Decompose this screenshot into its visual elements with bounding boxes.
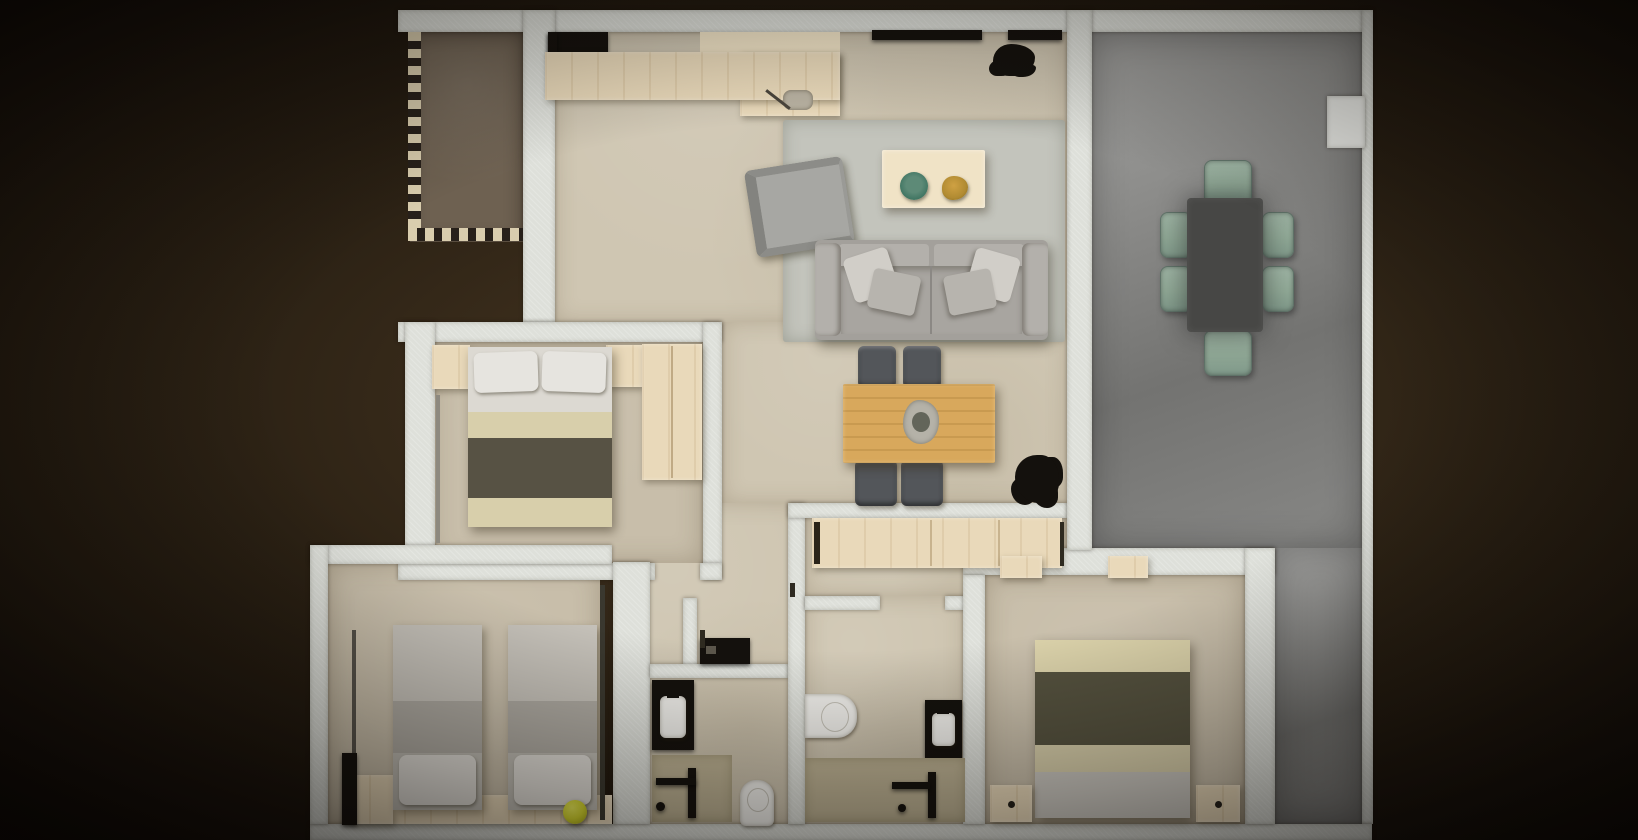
- twin-pillow: [514, 755, 591, 805]
- bed-twin-b: [508, 625, 597, 810]
- shower2-floor: [805, 758, 965, 822]
- sofa-seam: [930, 266, 932, 334]
- balcony-floor: [410, 32, 523, 242]
- balcony-railing-left: [408, 32, 421, 230]
- door-block: [1000, 556, 1042, 578]
- wall-bedroom3-right: [1245, 548, 1275, 824]
- door-block: [1108, 556, 1148, 578]
- nightstand: [1196, 785, 1240, 822]
- twin-band: [393, 701, 482, 753]
- twin-band: [508, 701, 597, 753]
- wardrobe-seam: [671, 346, 673, 478]
- vanity-bathroom1: [652, 680, 694, 750]
- shower2-arm: [892, 782, 930, 789]
- sofa: [815, 240, 1048, 340]
- dining-chair: [858, 346, 896, 388]
- shower2-drain: [898, 804, 906, 812]
- bed-double-1: [468, 347, 612, 527]
- toilet-bathroom1: [740, 780, 774, 826]
- bed3-blanket: [1035, 672, 1190, 745]
- nightstand-knob: [1008, 801, 1015, 808]
- plant-hall: [1015, 455, 1059, 503]
- shower1-drain: [656, 802, 665, 811]
- balcony-railing-bottom: [408, 228, 523, 241]
- yellow-ball: [563, 800, 587, 824]
- sink-bathroom2: [932, 713, 955, 746]
- sideboard-right-shadow: [1060, 522, 1064, 566]
- sofa-armrest-right: [1022, 243, 1048, 336]
- sideboard-seam: [930, 520, 932, 566]
- door-frame-tick: [700, 630, 705, 648]
- wall-bathroom2-top-b: [945, 596, 965, 610]
- bed1-cream-foot: [468, 498, 612, 527]
- wall-bedroom2-left: [310, 545, 328, 824]
- sink-bathroom1: [660, 696, 686, 738]
- bed1-pillow: [541, 351, 606, 393]
- shower1-bar: [688, 768, 696, 818]
- toilet-bathroom2: [805, 694, 857, 738]
- vanity-bathroom2: [925, 700, 962, 758]
- twin-pillow: [399, 755, 476, 805]
- table-centerpiece: [903, 400, 939, 444]
- dining-chair: [901, 460, 943, 506]
- window-slit-2: [1008, 30, 1062, 40]
- nightstand-knob: [1215, 801, 1222, 808]
- wall-bathrooms-divider: [788, 503, 805, 824]
- tap-bathroom2: [937, 705, 949, 714]
- wall-column: [1327, 96, 1365, 148]
- bed-double-3: [1035, 640, 1190, 818]
- nightstand: [432, 345, 470, 389]
- coffee-table: [882, 150, 985, 208]
- terrace-table: [1187, 198, 1263, 332]
- wall-bottom: [310, 824, 1372, 840]
- sideboard-end-shadow: [814, 522, 820, 564]
- tap-bathroom1: [667, 688, 679, 698]
- wall-bedroom1-right: [703, 322, 722, 580]
- sofa-armrest-left: [815, 243, 841, 336]
- terrace-chair: [1262, 212, 1294, 258]
- wall-washer-niche-stub: [683, 598, 697, 666]
- wall-bathroom1-top: [650, 664, 788, 678]
- bedroom1-rail: [436, 395, 440, 543]
- bed1-cream-band: [468, 412, 612, 440]
- washer-detail: [706, 646, 716, 654]
- washer: [700, 638, 750, 664]
- bed-twin-a: [393, 625, 482, 810]
- bed3-sheet-bottom: [1035, 772, 1190, 818]
- wall-bedroom1-top: [398, 322, 722, 342]
- wardrobe: [642, 344, 702, 480]
- shower1-arm: [656, 778, 696, 785]
- door-frame-tick: [790, 583, 795, 597]
- bed3-cream-top: [1035, 640, 1190, 672]
- dining-chair: [855, 460, 897, 506]
- wall-bedroom2-bathroom1: [613, 562, 650, 824]
- bed1-blanket: [468, 438, 612, 500]
- bed1-pillow: [473, 351, 538, 393]
- floor-plan-render: [0, 0, 1638, 840]
- toilet2-seat-line: [821, 702, 849, 732]
- dining-chair: [903, 346, 941, 388]
- bed3-cream-mid: [1035, 745, 1190, 772]
- terrace-chair: [1262, 266, 1294, 312]
- wall-bedroom2-top: [310, 545, 612, 564]
- wall-terrace-left: [1067, 10, 1092, 550]
- twin-duvet: [393, 625, 482, 701]
- green-plate: [900, 172, 928, 200]
- terrace-floor-right: [1275, 548, 1362, 824]
- wall-bedroom1-bottom-b: [700, 563, 722, 580]
- window-slit-1: [872, 30, 982, 40]
- nightstand: [990, 785, 1032, 822]
- twin-duvet: [508, 625, 597, 701]
- wall-bedroom1-left: [405, 322, 435, 563]
- toilet1-seat-line: [747, 788, 769, 812]
- kitchen-counter-upper: [700, 32, 840, 52]
- centerpiece-plant: [912, 412, 930, 432]
- bedroom2-dark-bar: [342, 753, 357, 825]
- wall-bathroom2-top-a: [805, 596, 880, 610]
- bedroom2-door-shadow: [600, 585, 605, 820]
- terrace-chair: [1204, 330, 1252, 376]
- shower2-bar: [928, 772, 936, 818]
- wall-bedroom3-left: [963, 575, 985, 824]
